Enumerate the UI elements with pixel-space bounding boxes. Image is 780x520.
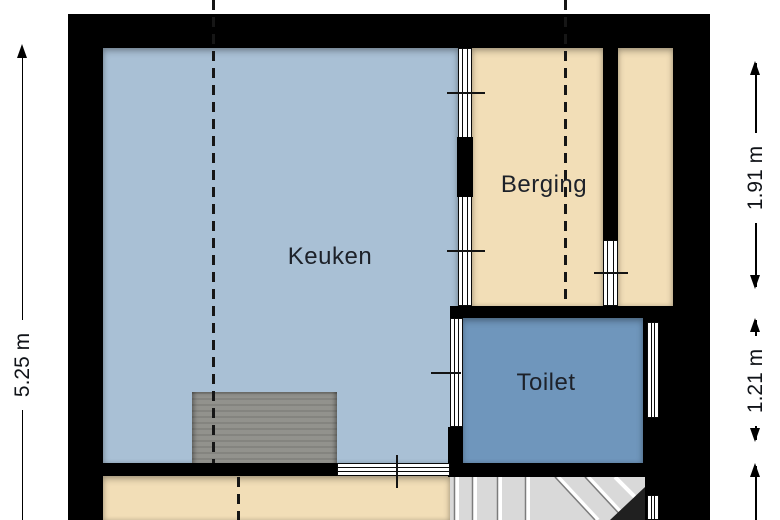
arrow-down-icon [750,275,760,289]
wall-toilet-bottom [450,463,710,477]
window-kitchen-bottom [337,463,450,476]
side-corridor-floor [618,48,673,306]
dashed-axis-berging [564,0,568,306]
dimension-line-left [22,50,24,520]
wall-kitchen-bottom [103,463,337,476]
stairs [450,477,645,520]
window-stairs-right [647,495,659,520]
arrow-up-icon [17,44,27,58]
window-toilet-right [647,322,659,418]
arrow-down-icon [750,428,760,442]
arrow-up-icon [750,318,760,332]
room-label-berging: Berging [464,171,624,199]
floor-plan: Keuken Berging Toilet 5.25 m 1.91 m 1.21… [0,0,780,520]
dashed-axis-keuken [212,0,216,463]
tick-mark [594,272,628,274]
dashed-axis-hall [237,477,241,520]
arrow-up-icon [750,463,760,477]
room-label-keuken: Keuken [250,243,410,271]
dimension-label-left: 5.25 m [10,320,36,410]
tick-mark [447,92,485,94]
wall-top [68,14,710,48]
wall-left [68,14,103,520]
tick-mark [396,455,398,488]
wall-berging-toilet [450,306,710,318]
arrow-up-icon [750,61,760,75]
dimension-label-right-top: 1.91 m [743,133,769,223]
dimension-label-right-middle: 1.21 m [743,336,769,426]
room-label-toilet: Toilet [466,369,626,397]
tick-mark [431,372,461,374]
wall-berging-right [603,48,618,240]
tick-mark [447,250,485,252]
